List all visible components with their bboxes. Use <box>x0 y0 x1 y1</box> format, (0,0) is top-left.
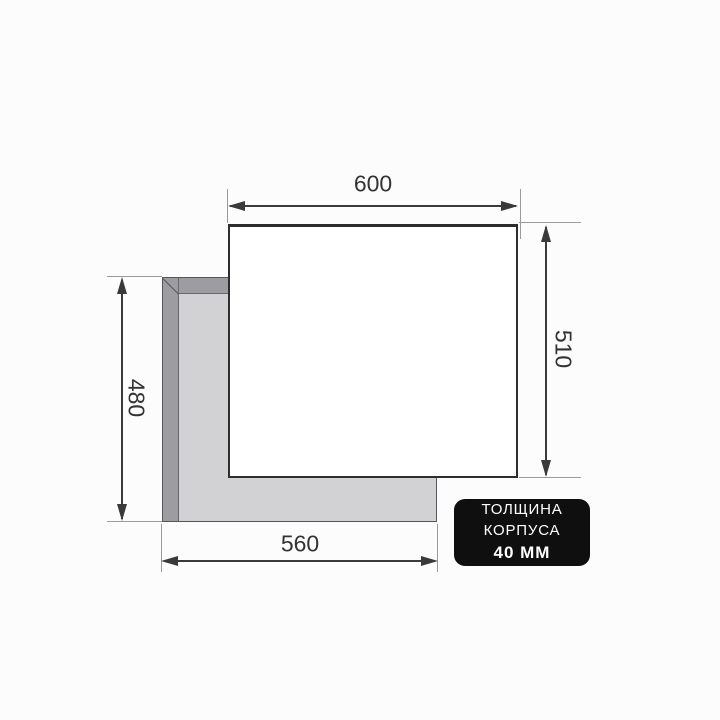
dimension-diagram-canvas: 600 510 480 560 ТОЛЩИНА КОРПУСА 40 ММ <box>0 0 720 720</box>
extension-line-right-bottom <box>519 477 581 478</box>
badge-line-1: ТОЛЩИНА <box>481 500 562 520</box>
thickness-badge: ТОЛЩИНА КОРПУСА 40 ММ <box>454 499 590 566</box>
dim-right-depth-line <box>545 227 547 475</box>
extension-line-right-top <box>519 222 581 223</box>
arrowhead-left-icon <box>228 201 245 211</box>
appliance-body-outline <box>228 224 518 478</box>
arrowhead-down-icon <box>117 504 127 521</box>
dim-bottom-cutout-width-line <box>164 560 435 562</box>
extension-line-left-bottom <box>107 521 162 522</box>
dim-bottom-cutout-width-label: 560 <box>281 533 319 556</box>
dim-top-width-line <box>230 205 516 207</box>
arrowhead-up-icon <box>541 225 551 242</box>
arrowhead-left-icon <box>161 556 178 566</box>
dim-top-width-label: 600 <box>354 173 392 196</box>
panel-left-edge-band <box>163 278 179 521</box>
dim-left-cutout-depth-label: 480 <box>125 379 148 417</box>
badge-line-3: 40 ММ <box>494 542 551 565</box>
extension-line-left-top <box>107 276 162 277</box>
badge-line-2: КОРПУСА <box>484 521 561 541</box>
dim-right-depth-label: 510 <box>552 330 575 368</box>
arrowhead-right-icon <box>501 201 518 211</box>
arrowhead-down-icon <box>541 460 551 477</box>
extension-line-top-right <box>520 189 521 239</box>
arrowhead-up-icon <box>117 277 127 294</box>
arrowhead-right-icon <box>421 556 438 566</box>
